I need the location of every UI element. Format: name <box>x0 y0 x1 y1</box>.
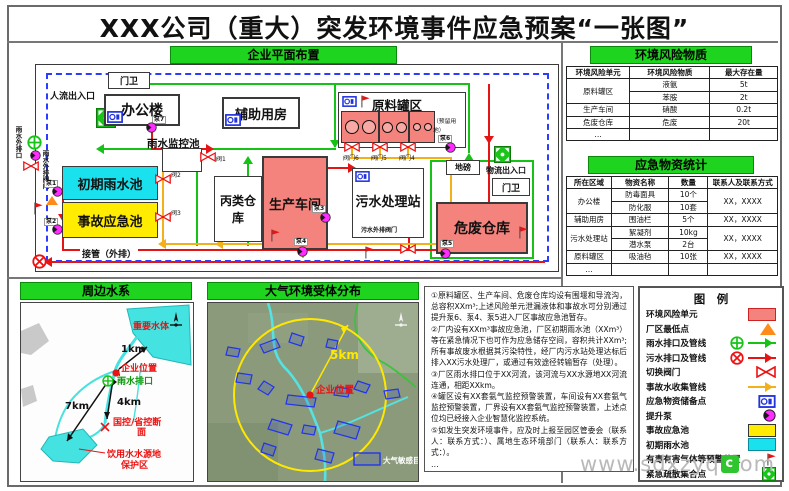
legend-item: 提升泵 <box>640 409 782 424</box>
lift-pump-icon <box>320 212 331 223</box>
lift-pump-icon <box>297 246 308 257</box>
rainwater-pipeline-segment <box>100 148 336 150</box>
switch-valve-icon <box>756 366 776 378</box>
important-water-label: 重要水体 <box>133 320 170 332</box>
cell-substance <box>630 128 710 140</box>
lift-pump-icon <box>445 142 456 153</box>
plan-header: 企业平面布置 <box>170 46 397 64</box>
cell-contact: XX，XXXX <box>708 189 778 214</box>
cell-amount: 0.2t <box>710 104 778 116</box>
cell-contact: XX，XXXX <box>708 214 778 226</box>
water-map-svg: 重要水体 企业位置 雨水排口 国控/省控断 面 饮用水水源地 保护区 1km 4… <box>21 303 193 481</box>
note-item: ①原料罐区、生产车间、危废仓库均设有围堰和导流沟，总容积XXm³;上述风险单元泄… <box>431 291 627 324</box>
production-workshop: 生产车间 <box>262 156 328 250</box>
valve2-label: 阀2 <box>171 170 181 179</box>
valve6-label: 阀门6 <box>343 153 359 162</box>
reserved-land-label: （预留用地） <box>433 116 461 134</box>
sewage-out-valve-label: 污水外排阀门 <box>361 225 397 234</box>
cell-item: 围油栏 <box>611 214 668 226</box>
risk-unit-swatch <box>748 308 776 321</box>
rainwater-pipeline-segment <box>334 83 336 147</box>
watermark: www.sdxzyqcom <box>580 452 775 476</box>
rainwater-pipeline-segment <box>196 160 198 246</box>
cell-amount: 5t <box>710 79 778 91</box>
sewage-outfall-icon <box>32 254 47 269</box>
rainwater-pipeline-segment <box>114 83 470 85</box>
switch-valve-icon <box>400 142 416 152</box>
cell-amount <box>710 128 778 140</box>
table-row: 生产车间 硝酸 0.2t <box>567 104 778 116</box>
supplies-col-contact: 联系人及联系方式 <box>708 177 778 189</box>
cell-qty <box>669 263 708 275</box>
cell-item: 潜水泵 <box>611 238 668 250</box>
tank-group-large <box>341 111 379 143</box>
legend-item: 应急物资储备点 <box>640 394 782 409</box>
hazwaste-label: 危废仓库 <box>454 218 510 238</box>
title-divider <box>7 41 778 43</box>
legend-item: 污水排口及管线 <box>640 351 782 366</box>
cell-area: 辅助用房 <box>567 214 612 226</box>
lowest-point-icon <box>760 323 776 335</box>
note-item: ②厂内设有XXm³事故应急池，厂区初期雨水池（XXm³）等在紧急情况下也可作为应… <box>431 325 627 369</box>
table-row: … <box>567 128 778 140</box>
supply-point-icon <box>355 171 370 182</box>
tank-circle <box>413 123 421 131</box>
legend-label: 应急物资储备点 <box>646 395 706 407</box>
legend-label: 提升泵 <box>646 410 672 422</box>
cell-amount: 2t <box>710 91 778 103</box>
air-sensitive-target-label: 大气敏感目标 <box>383 455 418 465</box>
cell-area: 污水处理站 <box>567 226 612 251</box>
aux-building: 辅助用房 <box>222 97 300 129</box>
legend-label: 环境风险单元 <box>646 308 698 320</box>
sewage-outfall-icon <box>730 351 744 365</box>
row-divider <box>7 277 561 279</box>
tank-circle <box>362 120 376 134</box>
supplies-col-item: 物资名称 <box>611 177 668 189</box>
legend-label: 事故应急池 <box>646 424 689 436</box>
switch-valve-icon <box>372 142 388 152</box>
valve4-label: 阀门4 <box>399 153 415 162</box>
cell-amount: 20t <box>710 116 778 128</box>
table-row: 污水处理站 絮凝剂 10kg XX，XXXX <box>567 226 778 238</box>
people-entrance-label: 人流出入口 <box>50 89 95 102</box>
pump5-label: 泵5 <box>440 240 454 248</box>
cell-unit: … <box>567 128 630 140</box>
lowest-point-icon <box>46 196 58 205</box>
risk-header: 环境风险物质 <box>590 46 752 64</box>
supply-point-icon <box>225 114 241 126</box>
page-title: XXX公司（重大）突发环境事件应急预案“一张图” <box>0 9 789 45</box>
watermark-text: om <box>740 452 775 476</box>
tank-group-small <box>409 111 435 143</box>
rain-outfall-icon <box>27 135 42 150</box>
valve5-label: 阀门5 <box>371 153 387 162</box>
air-map: 企业位置 5km 大气敏感目标 <box>207 302 419 482</box>
tank-circle <box>396 122 407 133</box>
risk-table: 环境风险单元 环境风险物质 最大存在量 原料罐区 液氨 5t 苯胺 2t 生产车… <box>566 66 778 141</box>
rain-out-valve-icon <box>23 161 39 171</box>
legend-item: 事故水收集管线 <box>640 380 782 395</box>
accident-line-swatch <box>748 386 776 388</box>
legend-label: 雨水排口及管线 <box>646 337 706 349</box>
risk-col-unit: 环境风险单元 <box>567 67 630 79</box>
legend-title: 图 例 <box>640 288 782 307</box>
distance-7km: 7km <box>65 401 89 412</box>
cell-contact: XX，XXXX <box>708 226 778 251</box>
gas-warning-flag-icon <box>360 95 370 108</box>
cell-qty: 10套 <box>669 201 708 213</box>
cell-contact <box>708 263 778 275</box>
assembly-point-icon <box>494 146 511 163</box>
hazwaste-warehouse: 危废仓库 泵5 <box>436 202 528 254</box>
rain-monitor-pool <box>162 148 202 172</box>
aux-building-label: 辅助用房 <box>235 104 287 123</box>
cell-area: 原料罐区 <box>567 251 612 263</box>
switch-valve-icon <box>344 142 360 152</box>
cell-qty: 5个 <box>669 214 708 226</box>
cell-qty: 10kg <box>669 226 708 238</box>
sewage-treatment-station: 污水处理站 污水外排阀门 <box>352 168 424 238</box>
gate-right-box: 门卫 <box>492 178 530 196</box>
supply-point-icon <box>342 96 357 107</box>
accident-emergency-pool: 事故应急池 <box>62 202 158 238</box>
radius-5km-label: 5km <box>330 348 359 362</box>
legend-item: 事故应急池 <box>640 423 782 438</box>
outfall-pipe-label: 接管（外排） <box>80 247 138 260</box>
rain-outfall-icon <box>730 336 744 350</box>
cell-unit: 原料罐区 <box>567 79 630 104</box>
cell-substance: 液氨 <box>630 79 710 91</box>
air-header: 大气环境受体分布 <box>207 282 419 300</box>
table-row: 环境风险单元 环境风险物质 最大存在量 <box>567 67 778 79</box>
rainwater-arrow-left <box>96 144 104 154</box>
legend-label: 厂区最低点 <box>646 323 689 335</box>
rain-pool-swatch <box>748 438 776 451</box>
gas-warning-flag-icon <box>270 229 280 242</box>
rainwater-pipeline-segment <box>468 83 470 153</box>
legend-item: 厂区最低点 <box>640 322 782 337</box>
cell-item: 防化服 <box>611 201 668 213</box>
sewage-out-valve-icon <box>400 244 416 254</box>
tank-circle <box>424 123 432 131</box>
distance-1km: 1km <box>121 344 145 355</box>
sewage-arrow-down <box>484 136 494 144</box>
table-row: 原料罐区 吸油毡 10张 XX，XXXX <box>567 251 778 263</box>
legend-item: 环境风险单元 <box>640 307 782 322</box>
company-location-label: 企业位置 <box>315 384 355 396</box>
lift-pump-icon <box>146 122 157 133</box>
cell-qty: 10张 <box>669 251 708 263</box>
risk-col-substance: 环境风险物质 <box>630 67 710 79</box>
gas-warning-flag-icon <box>33 202 43 215</box>
gas-warning-flag-icon <box>518 226 528 239</box>
control-section-label2: 面 <box>137 427 146 438</box>
water-map: 重要水体 企业位置 雨水排口 国控/省控断 面 饮用水水源地 保护区 1km 4… <box>20 302 194 482</box>
drinking-source-label2: 保护区 <box>120 459 148 471</box>
tank-group-medium <box>379 111 409 143</box>
cell-qty: 10个 <box>669 189 708 201</box>
legend-label: 初期雨水池 <box>646 439 689 451</box>
tank-circle <box>382 122 393 133</box>
class-c-warehouse-label: 丙类仓库 <box>215 192 261 226</box>
cell-qty: 2台 <box>669 238 708 250</box>
switch-valve-icon <box>155 174 171 184</box>
rain-outlet-label: 雨水排口 <box>117 375 153 387</box>
air-map-svg: 企业位置 5km 大气敏感目标 <box>208 303 418 481</box>
tank-circle <box>345 120 359 134</box>
table-row: 危废仓库 危废 20t <box>567 116 778 128</box>
drinking-source-label: 饮用水水源地 <box>106 448 161 460</box>
supply-point-icon <box>758 395 776 408</box>
table-row: 办公楼 防毒面具 10个 XX，XXXX <box>567 189 778 201</box>
sewage-station-label: 污水处理站 <box>355 195 420 211</box>
table-row: … <box>567 263 778 275</box>
lift-pump-icon <box>763 409 776 422</box>
legend-label: 污水排口及管线 <box>646 352 706 364</box>
cell-item: 絮凝剂 <box>611 226 668 238</box>
sewage-line-swatch <box>748 357 776 359</box>
gate-top-box: 门卫 <box>108 72 150 89</box>
note-item: ③厂区雨水排口位于XX河流，该河流与XX水源地XX河流连通，相距XXkm。 <box>431 370 627 392</box>
legend-label: 切换阀门 <box>646 366 680 378</box>
legend-item: 切换阀门 <box>640 365 782 380</box>
note-item: ④罐区设有XX套氨气监控预警装置，车间设有XX套氨气监控预警装置，厂界设有XX套… <box>431 392 627 425</box>
table-row: 所在区域 物资名称 数量 联系人及联系方式 <box>567 177 778 189</box>
office-building: 办公楼 <box>104 94 180 126</box>
notes-panel: ①原料罐区、生产车间、危废仓库均设有围堰和导流沟，总容积XXm³;上述风险单元泄… <box>424 286 634 472</box>
lift-pump-icon <box>52 224 63 235</box>
legend-item: 雨水排口及管线 <box>640 336 782 351</box>
cell-area: … <box>567 263 612 275</box>
accident-water-arrow-left <box>158 239 166 249</box>
sewage-pipeline-segment <box>48 261 545 263</box>
switch-valve-icon <box>155 212 171 222</box>
supplies-table: 所在区域 物资名称 数量 联系人及联系方式 办公楼 防毒面具 10个 XX，XX… <box>566 176 778 276</box>
supplies-col-qty: 数量 <box>669 177 708 189</box>
table-row: 辅助用房 围油栏 5个 XX，XXXX <box>567 214 778 226</box>
company-location-label: 企业位置 <box>120 362 157 374</box>
supplies-header: 应急物资统计 <box>588 156 754 174</box>
cell-item: 防毒面具 <box>611 189 668 201</box>
class-c-warehouse: 丙类仓库 <box>214 176 262 242</box>
cell-substance: 苯胺 <box>630 91 710 103</box>
watermark-text: www.sdxzyq <box>580 452 720 476</box>
distance-4km: 4km <box>117 397 141 408</box>
cell-substance: 硝酸 <box>630 104 710 116</box>
rainwater-arrow-up <box>243 156 253 164</box>
supplies-col-area: 所在区域 <box>567 177 612 189</box>
table-row: 原料罐区 液氨 5t <box>567 79 778 91</box>
lift-pump-icon <box>440 248 451 259</box>
cell-unit: 生产车间 <box>567 104 630 116</box>
cell-substance: 危废 <box>630 116 710 128</box>
cell-unit: 危废仓库 <box>567 116 630 128</box>
legend-label: 事故水收集管线 <box>646 381 706 393</box>
emergency-plan-one-map: XXX公司（重大）突发环境事件应急预案“一张图” 企业平面布置 <box>0 0 789 491</box>
risk-col-amount: 最大存在量 <box>710 67 778 79</box>
cell-contact: XX，XXXX <box>708 251 778 263</box>
initial-rain-pool: 初期雨水池 <box>62 166 158 200</box>
pump4-label: 泵4 <box>294 238 308 246</box>
cell-area: 办公楼 <box>567 189 612 214</box>
gas-warning-flag-icon <box>364 246 374 259</box>
supply-point-icon <box>107 111 123 123</box>
valve3-label: 阀3 <box>171 208 181 217</box>
switch-valve-icon <box>200 152 216 162</box>
logistics-entrance-label: 物流出入口 <box>486 165 526 176</box>
control-section-label: 国控/省控断 <box>113 416 161 428</box>
valve1-label: 阀1 <box>216 154 226 163</box>
watermark-green-icon: c <box>721 455 739 473</box>
rain-outfall-label: 雨水外排口 <box>13 126 23 159</box>
cell-item: 吸油毡 <box>611 251 668 263</box>
legend-item: 初期雨水池 <box>640 438 782 453</box>
water-header: 周边水系 <box>20 282 192 300</box>
accident-pool-swatch <box>748 424 776 437</box>
weighbridge-box: 地磅 <box>446 160 480 175</box>
rainwater-line-swatch <box>748 342 776 344</box>
cell-item <box>611 263 668 275</box>
